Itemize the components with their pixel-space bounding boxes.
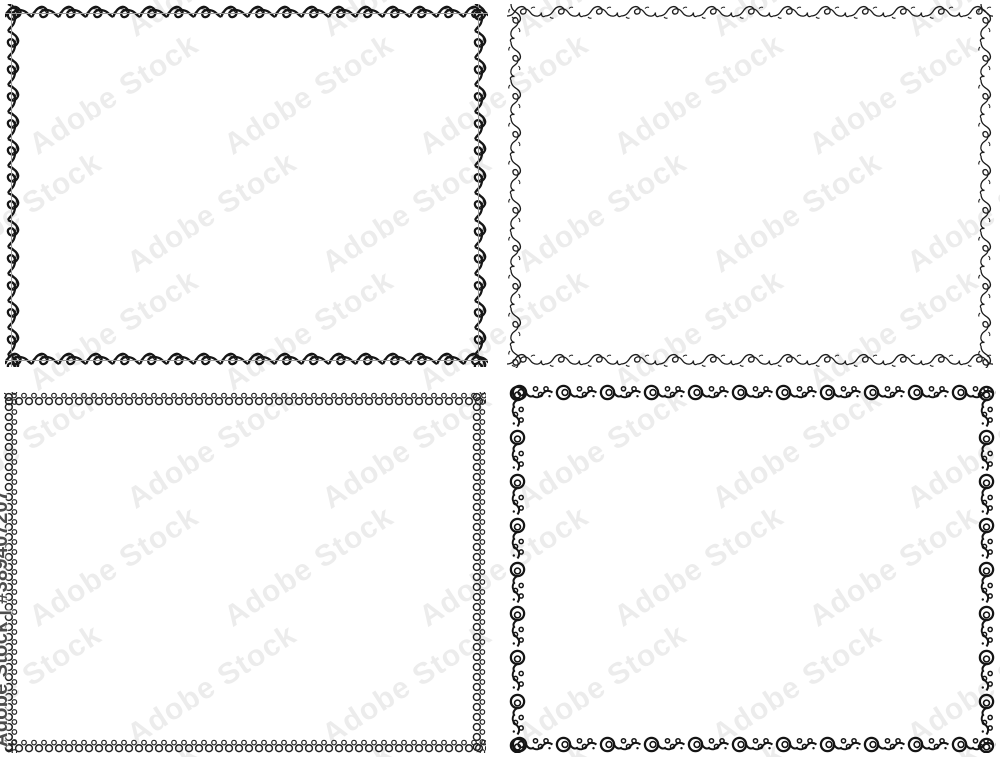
frame4-right-border bbox=[978, 383, 996, 753]
frame2-right-border bbox=[977, 4, 993, 368]
frame1-bottom-border bbox=[5, 351, 488, 367]
frame4-bottom-border bbox=[509, 735, 996, 753]
stock-image-canvas: Adobe StockAdobe StockAdobe StockAdobe S… bbox=[0, 0, 1000, 757]
frame2-bottom-border bbox=[507, 352, 993, 368]
frame-braided-rope bbox=[5, 4, 488, 367]
frame3-bottom-border bbox=[4, 739, 486, 753]
frame-calligraphic-loops bbox=[507, 4, 993, 368]
watermark-id-label: Adobe Stock | #389407207 bbox=[0, 490, 13, 747]
frame-bold-scrolls bbox=[509, 383, 996, 753]
frame3-right-border bbox=[472, 392, 486, 753]
frame2-left-border bbox=[507, 4, 523, 368]
frame1-right-border bbox=[472, 4, 488, 367]
frame4-top-border bbox=[509, 383, 996, 401]
frame4-left-border bbox=[509, 383, 527, 753]
frame1-top-border bbox=[5, 4, 488, 20]
frame-chain-rings bbox=[4, 392, 486, 753]
frame1-left-border bbox=[5, 4, 21, 367]
frame3-top-border bbox=[4, 392, 486, 406]
frame2-top-border bbox=[507, 4, 993, 20]
